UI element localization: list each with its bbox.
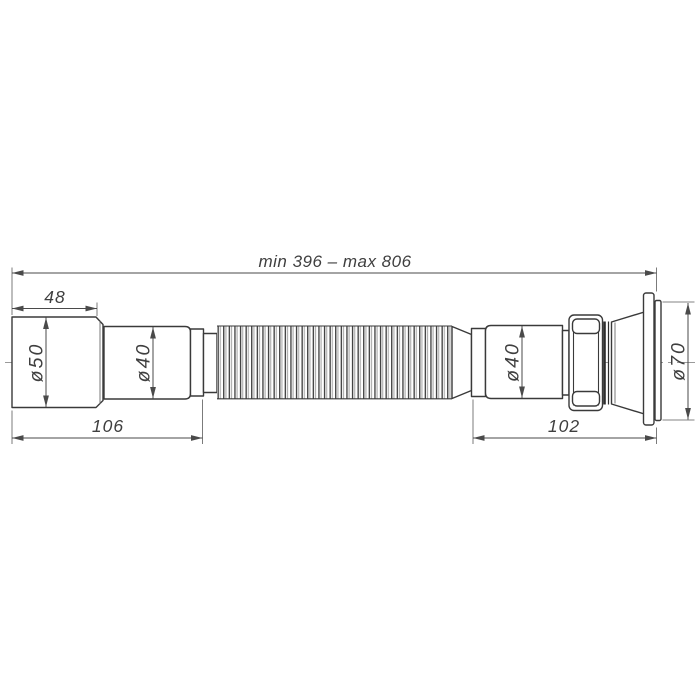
waste-pipe-drawing: min 396 – max 806 48 106 102 ø50 ø40 ø40…: [0, 0, 700, 700]
technical-drawing-page: min 396 – max 806 48 106 102 ø50 ø40 ø40…: [0, 0, 700, 700]
corrugated-hose: [217, 326, 452, 400]
right-collar: [472, 329, 486, 397]
right-pipe: [486, 326, 563, 399]
flange-ring: [655, 301, 661, 421]
label-right-pipe-diameter: ø40: [502, 342, 524, 382]
left-neck: [204, 334, 218, 393]
label-overall-length: min 396 – max 806: [258, 252, 411, 271]
label-left-pipe-diameter: ø40: [133, 343, 155, 383]
pipe-body: [12, 293, 661, 425]
label-right-assembly-length: 102: [548, 416, 580, 436]
nut-neck: [563, 331, 570, 396]
label-inlet-diameter: ø50: [26, 343, 48, 383]
outlet-cone: [612, 312, 647, 415]
label-left-assembly-length: 106: [92, 416, 124, 436]
label-outlet-diameter: ø70: [668, 341, 690, 381]
right-neck-cone: [452, 327, 472, 399]
label-cup-length: 48: [44, 287, 65, 307]
union-nut-top-chamfer: [573, 319, 600, 334]
left-collar: [191, 329, 204, 396]
union-nut-bottom-chamfer: [573, 392, 600, 407]
flange-plate: [644, 293, 655, 425]
